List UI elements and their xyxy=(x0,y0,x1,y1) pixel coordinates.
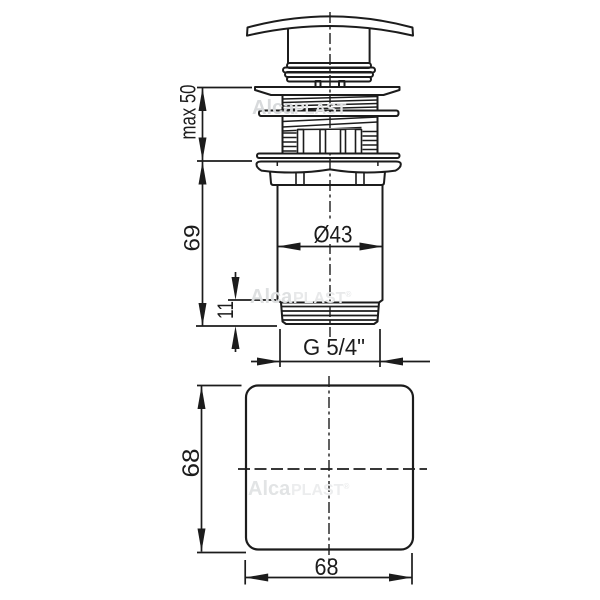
svg-text:68: 68 xyxy=(315,554,339,581)
svg-text:Alca: Alca xyxy=(248,478,291,500)
svg-text:PLAST®: PLAST® xyxy=(293,290,351,307)
svg-text:11: 11 xyxy=(213,301,238,319)
svg-text:PLAST®: PLAST® xyxy=(291,482,349,499)
svg-text:Alca: Alca xyxy=(250,286,293,308)
svg-text:68: 68 xyxy=(178,449,205,478)
svg-text:PLAST: PLAST xyxy=(294,101,347,118)
svg-text:G 5/4": G 5/4" xyxy=(303,334,365,360)
svg-text:max 50: max 50 xyxy=(176,85,201,140)
svg-text:69: 69 xyxy=(180,225,205,252)
svg-text:Ø43: Ø43 xyxy=(314,222,353,249)
svg-text:Alca: Alca xyxy=(252,97,295,119)
